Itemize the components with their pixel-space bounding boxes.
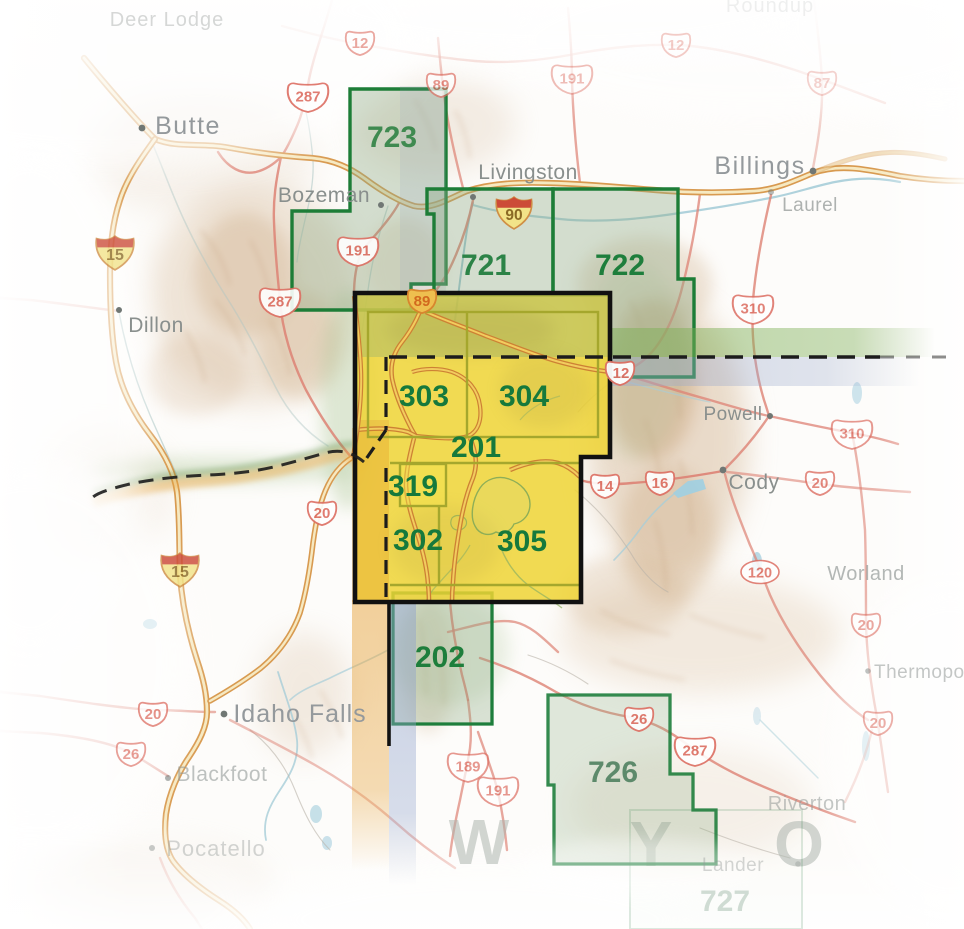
svg-text:304: 304: [499, 380, 549, 413]
svg-text:Idaho Falls: Idaho Falls: [233, 700, 366, 728]
svg-text:310: 310: [839, 426, 864, 443]
svg-text:201: 201: [451, 431, 501, 464]
svg-text:310: 310: [740, 301, 765, 318]
svg-text:14: 14: [597, 478, 614, 495]
svg-text:Pocatello: Pocatello: [166, 836, 266, 861]
svg-text:16: 16: [652, 475, 669, 492]
svg-text:89: 89: [414, 293, 431, 310]
svg-text:12: 12: [352, 35, 369, 52]
svg-text:89: 89: [433, 77, 450, 94]
svg-text:Thermopo: Thermopo: [874, 662, 964, 683]
svg-text:726: 726: [588, 756, 638, 789]
svg-text:305: 305: [497, 525, 547, 558]
svg-text:Cody: Cody: [728, 471, 779, 494]
svg-text:20: 20: [812, 475, 829, 492]
svg-text:Dillon: Dillon: [128, 314, 184, 337]
svg-text:20: 20: [870, 715, 887, 732]
svg-text:90: 90: [505, 207, 522, 224]
svg-text:722: 722: [595, 249, 645, 282]
svg-text:87: 87: [814, 75, 831, 92]
svg-text:303: 303: [399, 380, 449, 413]
svg-text:302: 302: [393, 524, 443, 557]
svg-text:15: 15: [171, 564, 189, 581]
svg-text:20: 20: [858, 617, 875, 634]
svg-text:Deer Lodge: Deer Lodge: [110, 9, 225, 31]
svg-text:Billings: Billings: [714, 152, 805, 180]
svg-text:Butte: Butte: [155, 112, 221, 140]
svg-text:287: 287: [295, 89, 320, 106]
svg-text:Riverton: Riverton: [768, 793, 846, 815]
svg-text:20: 20: [314, 505, 331, 522]
svg-text:15: 15: [106, 247, 124, 264]
svg-text:12: 12: [613, 365, 630, 382]
svg-text:Blackfoot: Blackfoot: [177, 763, 268, 786]
svg-text:Laurel: Laurel: [782, 195, 838, 216]
svg-text:202: 202: [415, 641, 465, 674]
svg-text:Livingston: Livingston: [478, 161, 578, 184]
svg-text:W: W: [449, 806, 510, 878]
svg-text:189: 189: [455, 759, 480, 776]
svg-text:Bozeman: Bozeman: [278, 184, 370, 207]
svg-text:727: 727: [700, 885, 750, 918]
svg-text:191: 191: [559, 71, 584, 88]
svg-text:191: 191: [345, 243, 370, 260]
svg-text:20: 20: [145, 706, 162, 723]
svg-text:120: 120: [748, 566, 772, 582]
svg-text:721: 721: [461, 249, 511, 282]
svg-text:723: 723: [367, 121, 417, 154]
svg-text:191: 191: [485, 783, 510, 800]
svg-text:Lander: Lander: [702, 855, 764, 876]
svg-text:287: 287: [267, 294, 292, 311]
svg-text:Worland: Worland: [827, 563, 905, 585]
svg-text:26: 26: [631, 711, 648, 728]
svg-text:Powell: Powell: [704, 404, 763, 425]
svg-text:Roundup: Roundup: [726, 0, 814, 17]
svg-text:26: 26: [123, 746, 140, 763]
svg-text:287: 287: [682, 743, 707, 760]
svg-text:319: 319: [388, 470, 438, 503]
svg-text:12: 12: [668, 37, 685, 54]
